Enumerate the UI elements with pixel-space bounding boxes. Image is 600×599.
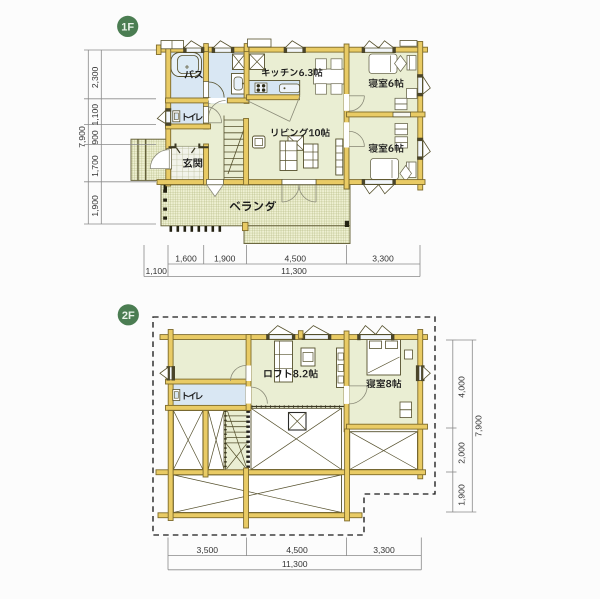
- svg-text:11,300: 11,300: [281, 266, 307, 276]
- svg-text:4,000: 4,000: [456, 376, 466, 398]
- svg-text:7,900: 7,900: [473, 415, 483, 437]
- svg-text:3,500: 3,500: [197, 545, 219, 555]
- svg-text:1,900: 1,900: [214, 253, 236, 263]
- svg-text:1,100: 1,100: [90, 104, 100, 126]
- svg-text:11,300: 11,300: [282, 559, 308, 569]
- svg-text:1,900: 1,900: [90, 195, 100, 217]
- svg-text:900: 900: [90, 130, 100, 145]
- svg-text:7,900: 7,900: [77, 126, 87, 148]
- svg-text:2,300: 2,300: [90, 66, 100, 88]
- svg-text:1,700: 1,700: [90, 155, 100, 177]
- svg-text:1F: 1F: [121, 21, 134, 33]
- svg-text:3,300: 3,300: [372, 253, 394, 263]
- svg-text:1,600: 1,600: [175, 253, 197, 263]
- svg-text:1,900: 1,900: [456, 484, 466, 506]
- svg-text:3,300: 3,300: [373, 545, 395, 555]
- svg-text:4,500: 4,500: [285, 253, 307, 263]
- svg-text:4,500: 4,500: [286, 545, 308, 555]
- svg-text:2,000: 2,000: [456, 442, 466, 464]
- svg-text:2F: 2F: [122, 310, 135, 322]
- svg-text:1,100: 1,100: [145, 266, 167, 276]
